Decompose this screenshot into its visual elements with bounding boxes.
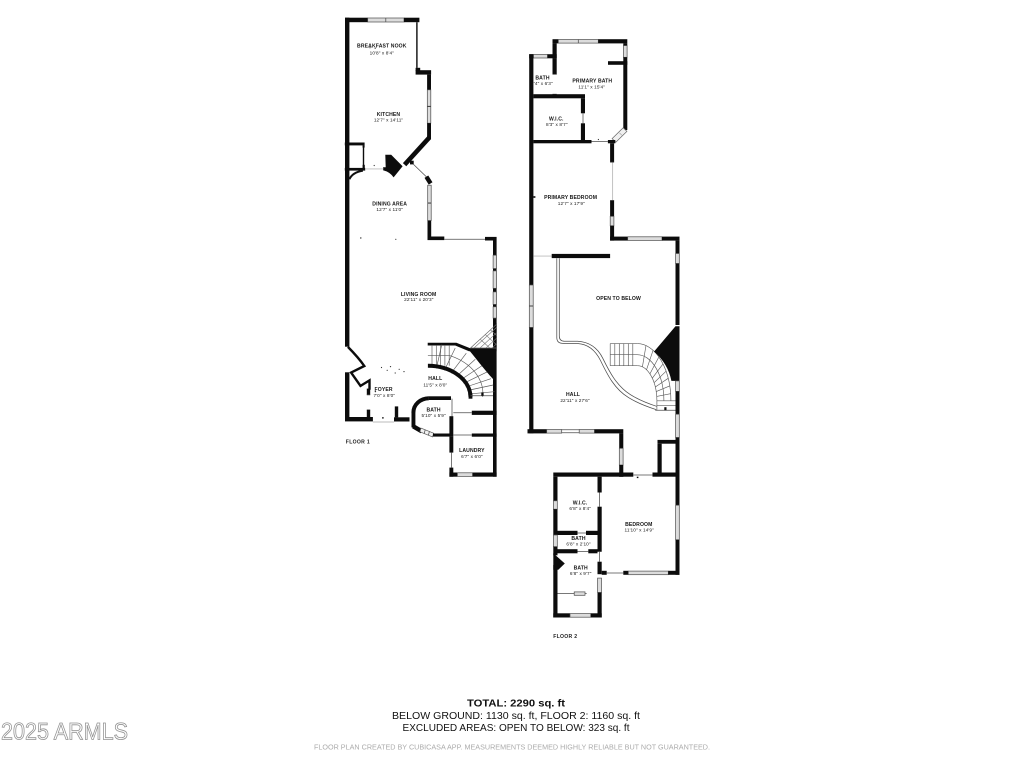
svg-text:2025 ARMLS: 2025 ARMLS <box>1 719 128 746</box>
svg-text:6'8" x 8'4": 6'8" x 8'4" <box>569 506 591 511</box>
svg-text:5'10" x 5'9": 5'10" x 5'9" <box>421 413 446 418</box>
svg-text:FLOOR PLAN CREATED BY CUBICASA: FLOOR PLAN CREATED BY CUBICASA APP. MEAS… <box>314 743 710 752</box>
svg-text:11'1" x 15'4": 11'1" x 15'4" <box>578 84 605 89</box>
svg-text:6'8" x 2'10": 6'8" x 2'10" <box>566 542 591 547</box>
svg-text:BELOW GROUND: 1130 sq. ft, FLO: BELOW GROUND: 1130 sq. ft, FLOOR 2: 1160… <box>392 711 640 722</box>
svg-text:22'11" x 27'6": 22'11" x 27'6" <box>560 398 590 403</box>
svg-text:FLOOR 1: FLOOR 1 <box>346 439 370 445</box>
svg-text:10'8" x 8'4": 10'8" x 8'4" <box>370 51 395 56</box>
svg-text:OPEN TO BELOW: OPEN TO BELOW <box>596 296 641 302</box>
svg-text:12'7" x 11'0": 12'7" x 11'0" <box>376 207 403 212</box>
svg-text:HALL: HALL <box>428 376 442 382</box>
svg-text:BREAKFAST NOOK: BREAKFAST NOOK <box>357 43 407 49</box>
svg-text:6'8" x 9'7": 6'8" x 9'7" <box>570 571 592 576</box>
svg-text:11'5" x 8'0": 11'5" x 8'0" <box>423 382 447 387</box>
svg-text:TOTAL: 2290 sq. ft: TOTAL: 2290 sq. ft <box>467 699 566 710</box>
svg-text:FOYER: FOYER <box>375 387 393 393</box>
svg-text:LAUNDRY: LAUNDRY <box>459 448 485 454</box>
svg-text:12'7" x 17'9": 12'7" x 17'9" <box>558 201 585 206</box>
svg-text:6'7" x 6'0": 6'7" x 6'0" <box>461 454 483 459</box>
svg-text:12'7" x 14'11": 12'7" x 14'11" <box>374 118 404 123</box>
svg-text:7'0" x 8'0": 7'0" x 8'0" <box>373 393 395 398</box>
svg-text:EXCLUDED AREAS: OPEN TO BELOW:: EXCLUDED AREAS: OPEN TO BELOW: 323 sq. f… <box>403 723 630 734</box>
svg-text:7'4" x 6'3": 7'4" x 6'3" <box>531 81 553 86</box>
svg-text:22'11" x 20'3": 22'11" x 20'3" <box>404 297 434 302</box>
svg-text:8'3" x 8'7": 8'3" x 8'7" <box>546 122 568 127</box>
svg-text:FLOOR 2: FLOOR 2 <box>553 634 577 640</box>
svg-text:11'10" x 14'9": 11'10" x 14'9" <box>625 528 655 533</box>
